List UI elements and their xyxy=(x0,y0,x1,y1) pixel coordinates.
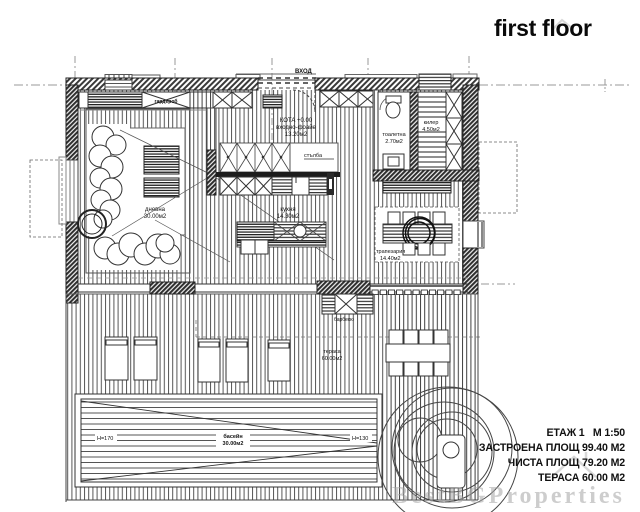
svg-text:first floor: first floor xyxy=(494,15,592,41)
svg-text:входно-фоайе: входно-фоайе xyxy=(276,124,316,131)
svg-text:4.50м2: 4.50м2 xyxy=(422,127,440,133)
svg-text:дневна: дневна xyxy=(145,207,166,213)
svg-text:60.00м2: 60.00м2 xyxy=(322,356,343,362)
svg-text:трапезария: трапезария xyxy=(376,249,405,255)
svg-text:стълба: стълба xyxy=(304,153,323,159)
svg-text:барбекю: барбекю xyxy=(334,317,354,323)
svg-text:14.40м2: 14.40м2 xyxy=(380,256,401,262)
svg-text:30.00м2: 30.00м2 xyxy=(223,441,244,447)
svg-text:тоалетна: тоалетна xyxy=(382,132,406,138)
svg-text:Н=130: Н=130 xyxy=(352,436,368,442)
svg-text:2.70м2: 2.70м2 xyxy=(385,139,403,145)
svg-text:ТЕРАСА 60.00 М2: ТЕРАСА 60.00 М2 xyxy=(538,472,625,484)
svg-text:Н=170: Н=170 xyxy=(97,436,113,442)
svg-text:ВХОД: ВХОД xyxy=(295,69,313,75)
svg-text:басейн: басейн xyxy=(223,433,242,440)
svg-text:кухня: кухня xyxy=(280,207,295,213)
svg-text:BestBGProperties: BestBGProperties xyxy=(392,483,625,509)
svg-text:гардероб: гардероб xyxy=(155,98,178,105)
svg-text:ЕТАЖ 1 М 1:50: ЕТАЖ 1 М 1:50 xyxy=(547,427,626,439)
svg-text:14.30м2: 14.30м2 xyxy=(277,214,300,220)
svg-text:КОТА +0.00: КОТА +0.00 xyxy=(280,118,313,124)
svg-text:13.20м2: 13.20м2 xyxy=(285,132,308,138)
svg-text:тераса: тераса xyxy=(323,349,341,355)
svg-text:килер: килер xyxy=(424,120,439,126)
svg-text:ЗАСТРОЕНА ПЛОЩ 99.40 М2: ЗАСТРОЕНА ПЛОЩ 99.40 М2 xyxy=(479,442,625,454)
svg-text:ЧИСТА ПЛОЩ 79.20 М2: ЧИСТА ПЛОЩ 79.20 М2 xyxy=(508,457,625,469)
